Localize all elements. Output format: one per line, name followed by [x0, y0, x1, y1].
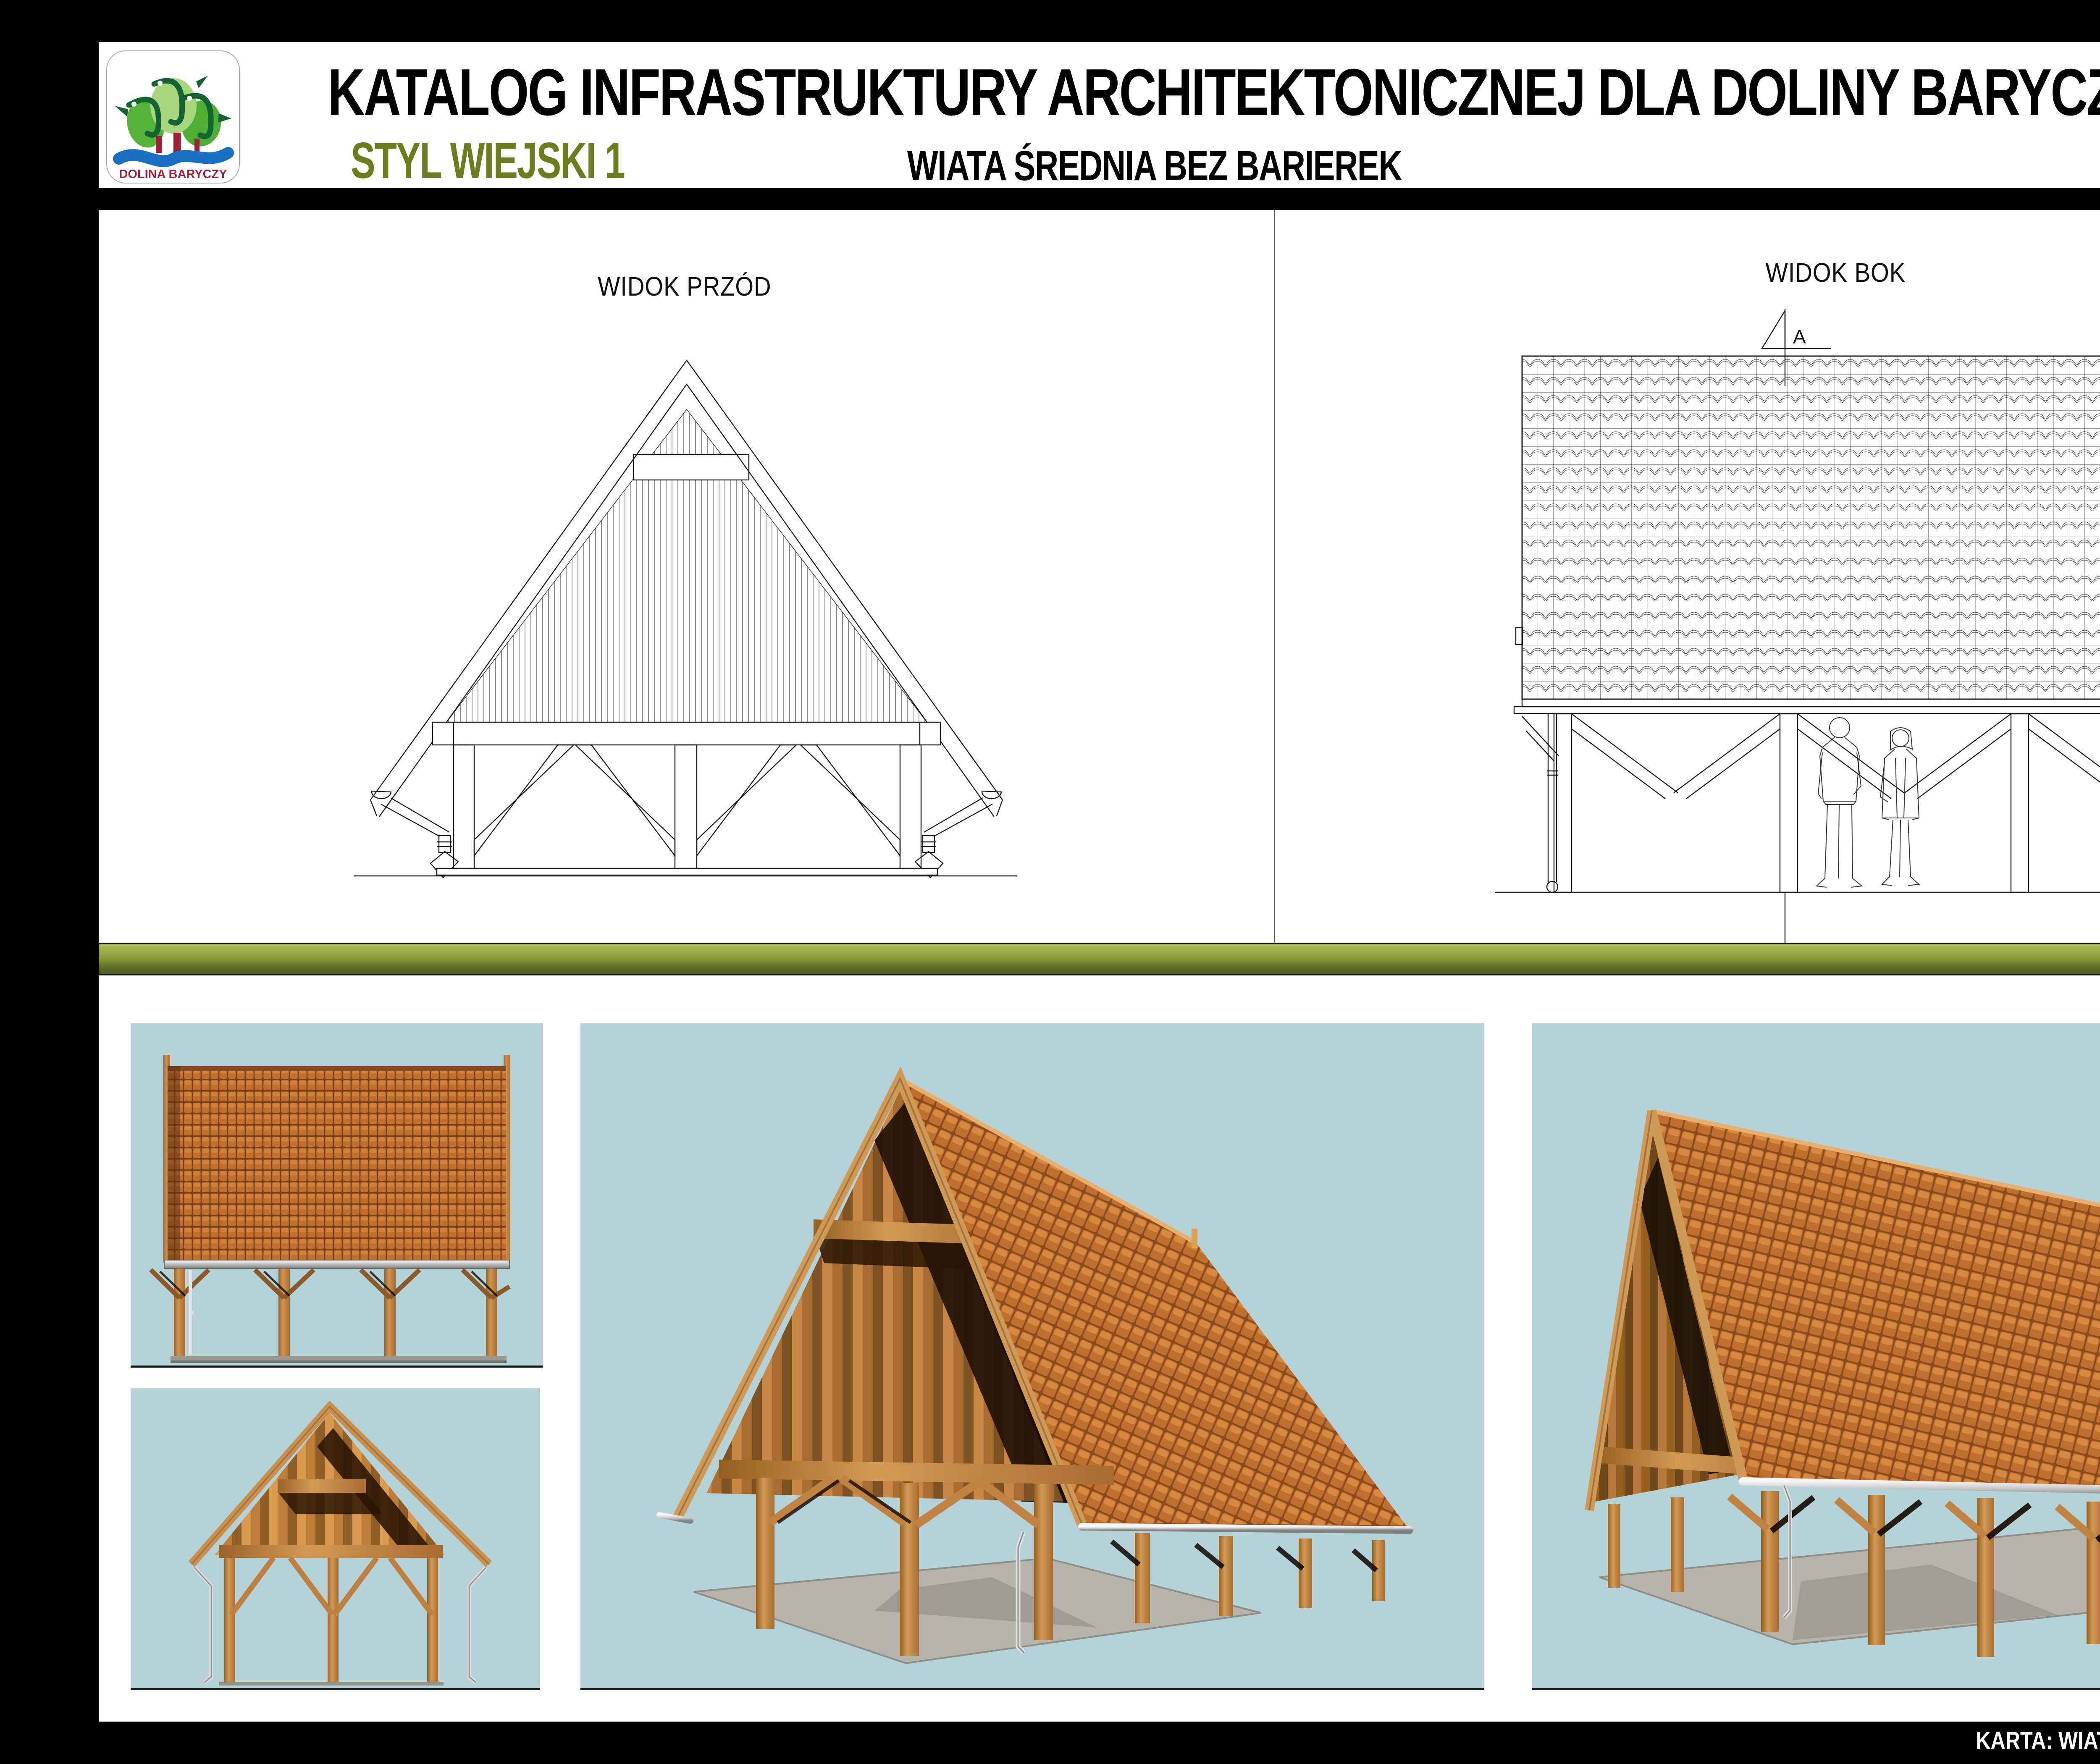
header-divider-rule [99, 188, 2100, 210]
render-perspective-side-image [1532, 1023, 2100, 1688]
dolina-baryczy-logo: DOLINA BARYCZY [106, 50, 240, 183]
render-front-view-image [131, 1388, 540, 1688]
render-panel-perspective-side [1532, 1023, 2100, 1690]
logo-caption: DOLINA BARYCZY [119, 168, 227, 181]
catalog-sheet-page: DOLINA BARYCZY KATALOG INFRASTRUKTURY AR… [0, 0, 2100, 1764]
render-panel-perspective-front [580, 1023, 1484, 1690]
footer-title: KARTA: WIATA ŚREDNIA BEZ BARIEREK [1976, 1727, 2100, 1754]
footer-card-label: KARTA: WIATA ŚREDNIA BEZ BARIEREK 2/2 [1892, 1727, 2100, 1755]
paper-sheet: DOLINA BARYCZY KATALOG INFRASTRUKTURY AR… [99, 42, 2100, 1722]
page-title: KATALOG INFRASTRUKTURY ARCHITEKTONICZNEJ… [328, 55, 2100, 131]
side-elevation-drawing: A A [1275, 210, 2100, 943]
render-panel-side-view [131, 1023, 543, 1368]
footer-bar: KARTA: WIATA ŚREDNIA BEZ BARIEREK 2/2 [0, 1722, 2100, 1764]
front-elevation-drawing [99, 210, 1274, 943]
render-side-view-image [131, 1023, 543, 1366]
section-marker-top: A [1793, 326, 1806, 348]
dolina-baryczy-logo-icon: DOLINA BARYCZY [107, 51, 239, 183]
item-name-label: WIATA ŚREDNIA BEZ BARIEREK [907, 142, 1541, 190]
page-title-text: KATALOG INFRASTRUKTURY ARCHITEKTONICZNEJ… [328, 55, 2100, 131]
render-perspective-front-image [580, 1023, 1484, 1688]
style-label: STYL WIEJSKI 1 [351, 131, 731, 190]
render-panel-front-view [131, 1388, 540, 1690]
section-divider-bar [99, 943, 2100, 975]
